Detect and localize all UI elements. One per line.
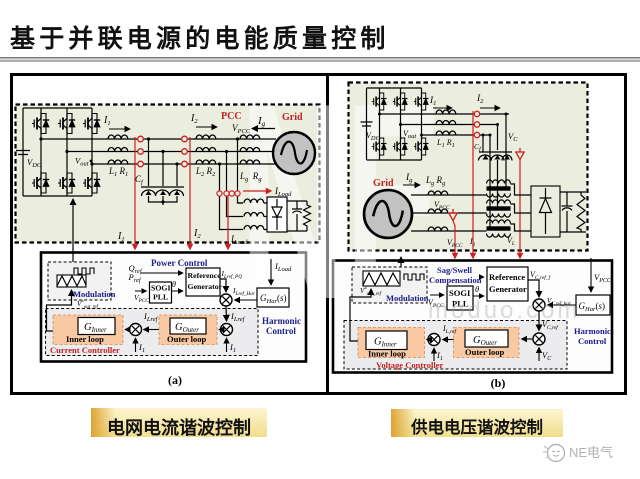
svg-text:Harmonic: Harmonic <box>574 326 611 336</box>
svg-text:(a): (a) <box>168 373 182 387</box>
svg-text:θ: θ <box>172 280 176 289</box>
svg-text:Outer loop: Outer loop <box>465 347 505 357</box>
svg-text:Compensation: Compensation <box>429 275 482 285</box>
svg-text:Generator: Generator <box>188 282 223 291</box>
svg-text:Inner loop: Inner loop <box>66 334 104 344</box>
svg-text:Inner loop: Inner loop <box>368 349 406 359</box>
svg-text:Reference: Reference <box>489 272 525 282</box>
svg-text:moduo.com: moduo.com <box>428 297 580 324</box>
svg-text:Sag/Swell: Sag/Swell <box>437 265 473 275</box>
svg-text:Control: Control <box>578 336 607 346</box>
svg-text:Modulation: Modulation <box>73 289 116 299</box>
svg-text:Reference: Reference <box>188 271 222 280</box>
svg-text:Generator: Generator <box>489 284 527 294</box>
svg-text:Grid: Grid <box>373 178 394 189</box>
svg-text:Outer loop: Outer loop <box>167 334 207 344</box>
svg-text:Modulation: Modulation <box>386 293 429 303</box>
svg-text:SOGI: SOGI <box>151 284 171 293</box>
svg-text:(b): (b) <box>491 376 506 390</box>
svg-text:NE电气: NE电气 <box>569 445 613 460</box>
svg-text:PLL: PLL <box>153 293 168 302</box>
svg-text:Voltage Controller: Voltage Controller <box>376 360 444 370</box>
svg-text:θ: θ <box>475 284 479 294</box>
svg-text:Current Controller: Current Controller <box>50 345 120 355</box>
svg-text:PCC: PCC <box>221 111 242 122</box>
svg-text:Power Control: Power Control <box>151 258 208 268</box>
svg-text:Control: Control <box>266 326 296 336</box>
svg-text:Harmonic: Harmonic <box>262 316 301 326</box>
svg-text:Grid: Grid <box>282 112 303 123</box>
